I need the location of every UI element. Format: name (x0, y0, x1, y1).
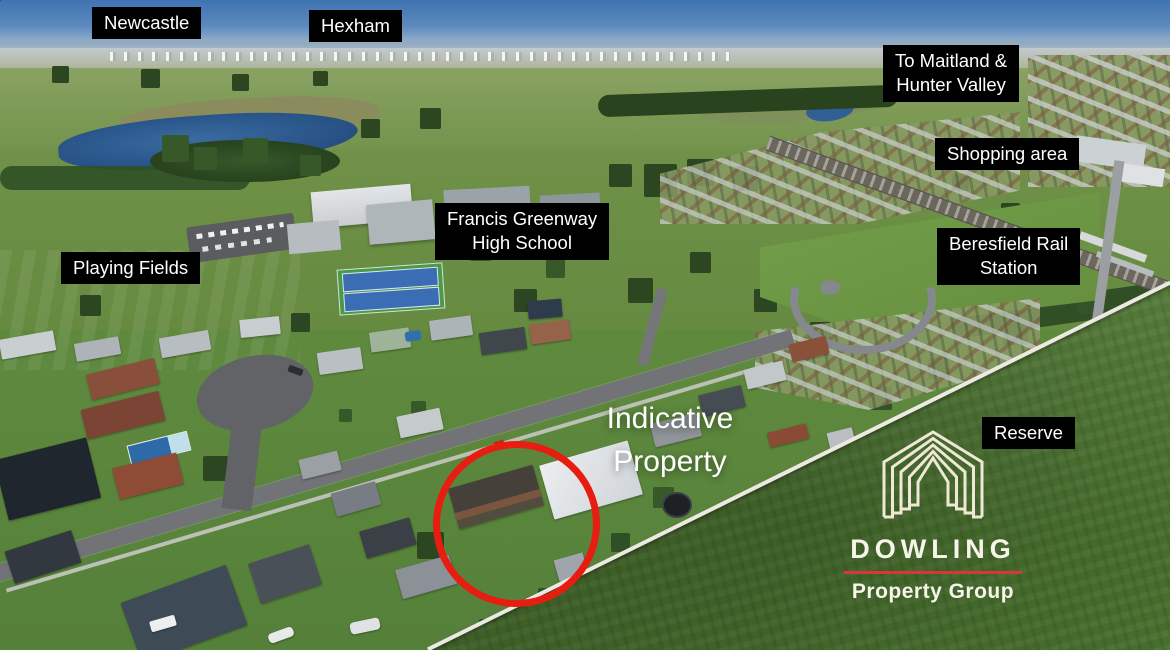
label-text: To Maitland & (895, 49, 1007, 73)
label-playing-fields: Playing Fields (61, 252, 200, 284)
dowling-logo: DOWLING Property Group (826, 428, 1040, 604)
tree-cluster (150, 140, 340, 182)
indicative-line: Indicative (607, 402, 734, 435)
label-text: Shopping area (947, 142, 1067, 166)
label-text: Station (949, 256, 1068, 280)
tree-scatter-mid (0, 0, 1, 1)
mini-cul-de-sac (820, 280, 840, 295)
label-text: Francis Greenway (447, 207, 597, 231)
indicative-property-text: Indicative Property (556, 398, 784, 483)
tennis-courts (337, 262, 446, 315)
label-text: High School (447, 231, 597, 255)
dowling-brand-text: DOWLING (826, 534, 1040, 565)
dowling-tagline: Property Group (826, 580, 1040, 604)
label-text: Hexham (321, 14, 390, 38)
shed-roof (527, 299, 562, 320)
label-francis-greenway-high-school: Francis Greenway High School (435, 203, 609, 260)
label-shopping-area: Shopping area (935, 138, 1079, 170)
dowling-house-icon (881, 428, 985, 520)
logo-divider (844, 571, 1022, 574)
label-maitland-hunter-valley: To Maitland & Hunter Valley (883, 45, 1019, 102)
indicative-line: Property (613, 445, 726, 478)
label-hexham: Hexham (309, 10, 402, 42)
aerial-property-map: Newcastle Hexham To Maitland & Hunter Va… (0, 0, 1170, 650)
label-beresfield-rail-station: Beresfield Rail Station (937, 228, 1080, 285)
trampoline (662, 492, 692, 518)
label-text: Newcastle (104, 11, 189, 35)
label-text: Playing Fields (73, 256, 188, 280)
label-text: Hunter Valley (895, 73, 1007, 97)
label-text: Beresfield Rail (949, 232, 1068, 256)
label-newcastle: Newcastle (92, 7, 201, 39)
distant-buildings (110, 52, 730, 61)
school-building (287, 220, 341, 254)
school-building (366, 199, 435, 245)
